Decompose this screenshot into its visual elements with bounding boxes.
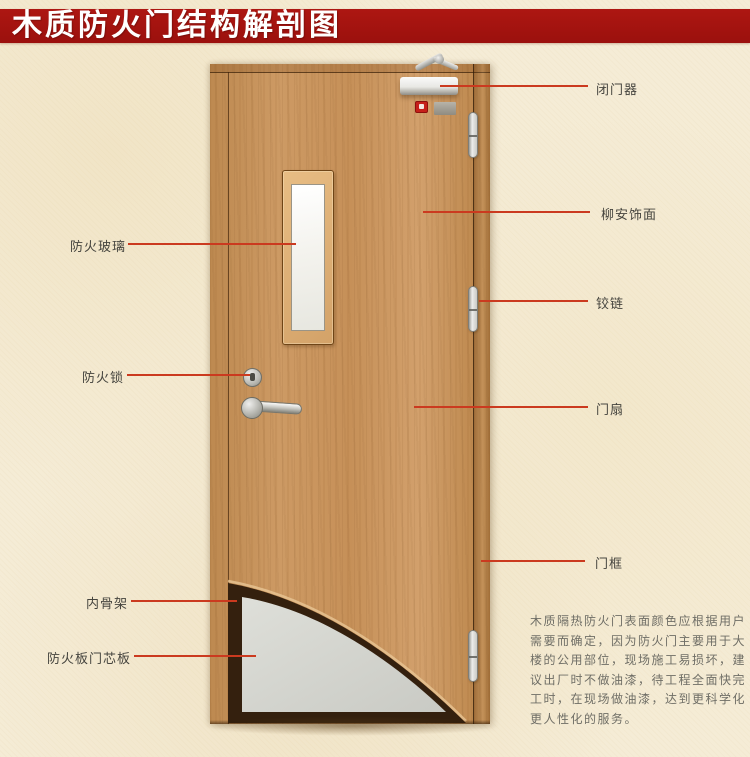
callout-line-hinge — [479, 300, 588, 302]
hinge-bottom — [468, 630, 478, 682]
description-line: 楼的公用部位，现场施工易损坏，建 — [530, 651, 750, 671]
door-handle-rose — [241, 397, 263, 419]
callout-line-fire-glass — [128, 243, 296, 245]
label-hinge: 铰链 — [596, 293, 624, 312]
label-door-frame: 门框 — [595, 553, 623, 572]
page-title: 木质防火门结构解剖图 — [12, 9, 342, 43]
hinge-middle — [468, 286, 478, 332]
door-cutaway — [210, 64, 490, 724]
callout-line-door-frame — [481, 560, 585, 562]
hinge-seam — [469, 135, 477, 137]
callout-line-door-leaf — [414, 406, 588, 408]
label-fire-lock: 防火锁 — [20, 367, 124, 386]
label-veneer: 柳安饰面 — [601, 204, 657, 223]
door-closer-pivot — [435, 55, 444, 64]
description-line: 议出厂时不做油漆，待工程全面快完 — [530, 671, 750, 691]
label-door-closer: 闭门器 — [596, 79, 638, 98]
label-door-leaf: 门扇 — [596, 399, 624, 418]
callout-line-fire-lock — [127, 374, 250, 376]
callout-line-inner-frame — [131, 600, 237, 602]
door-photo — [210, 64, 490, 724]
metal-plate — [434, 102, 456, 115]
door-shadow — [204, 716, 500, 736]
callout-line-fireproof-core — [134, 655, 256, 657]
title-banner: 木质防火门结构解剖图 — [0, 9, 750, 43]
fire-lock-cylinder — [243, 368, 262, 387]
callout-line-veneer — [423, 211, 590, 213]
glass-bevel-frame — [282, 170, 334, 345]
hinge-seam — [469, 656, 477, 658]
description-line: 工时，在现场做油漆，达到更科学化 — [530, 690, 750, 710]
fireproof-core-region — [242, 597, 446, 712]
hinge-top — [468, 112, 478, 158]
alarm-indicator — [415, 101, 428, 113]
label-inner-frame: 内骨架 — [20, 593, 128, 612]
label-fire-glass: 防火玻璃 — [20, 236, 126, 255]
keyhole — [250, 373, 255, 381]
callout-line-door-closer — [440, 85, 588, 87]
label-fireproof-core: 防火板门芯板 — [18, 648, 131, 667]
alarm-indicator-dot — [419, 104, 424, 109]
page-background: 木质防火门结构解剖图 — [0, 0, 750, 757]
fire-glass-panel — [291, 184, 325, 331]
description-text: 木质隔热防火门表面颜色应根据用户 需要而确定，因为防火门主要用于大 楼的公用部位… — [530, 612, 750, 729]
description-line: 更人性化的服务。 — [530, 710, 750, 730]
hinge-seam — [469, 309, 477, 311]
description-line: 需要而确定，因为防火门主要用于大 — [530, 632, 750, 652]
description-line: 木质隔热防火门表面颜色应根据用户 — [530, 612, 750, 632]
